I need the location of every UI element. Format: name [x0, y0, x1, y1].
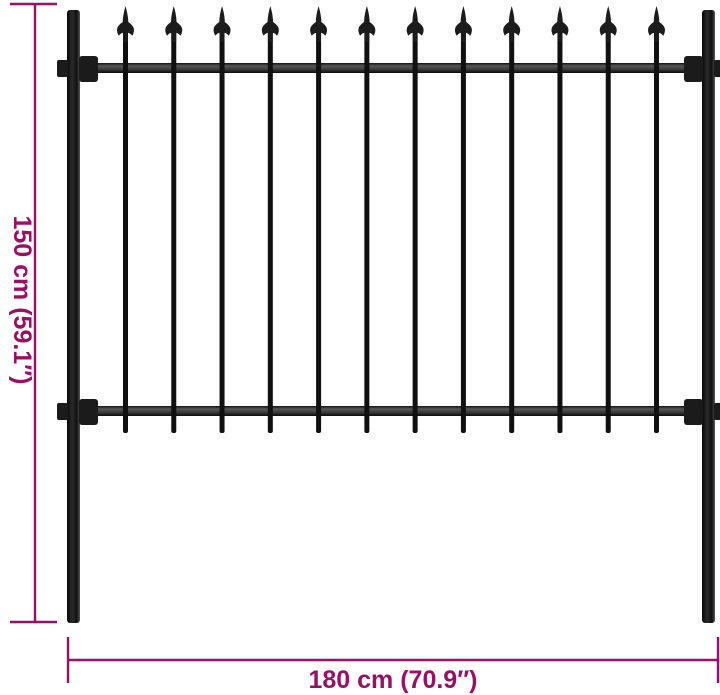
fence-diagram-canvas: 150 cm (59.1″) 180 cm (70.9″) — [0, 0, 720, 695]
fence-right-post — [702, 10, 715, 623]
picket-bar — [654, 30, 659, 433]
picket-bar — [509, 30, 514, 433]
bracket-nub-bottom-left — [57, 403, 68, 420]
bracket-nub-top-left — [57, 60, 68, 77]
fence-left-post — [67, 10, 80, 623]
picket-bar — [557, 30, 562, 433]
bracket-top-right — [684, 56, 703, 82]
picket-bar — [413, 30, 418, 433]
bracket-top-left — [79, 56, 98, 82]
picket-bar — [220, 30, 225, 433]
picket-bar — [316, 30, 321, 433]
picket-bar — [461, 30, 466, 433]
picket-bar — [171, 30, 176, 433]
bracket-bottom-left — [79, 399, 98, 425]
picket-bar — [123, 30, 128, 433]
picket-bar — [364, 30, 369, 433]
background — [0, 0, 720, 695]
bracket-bottom-right — [684, 399, 703, 425]
product-diagram: 150 cm (59.1″) 180 cm (70.9″) — [0, 0, 720, 695]
picket-bar — [268, 30, 273, 433]
picket-bar — [606, 30, 611, 433]
height-dimension-label: 150 cm (59.1″) — [8, 215, 36, 384]
width-dimension-label: 180 cm (70.9″) — [308, 666, 477, 694]
bracket-nub-top-right — [714, 60, 720, 77]
bracket-nub-bottom-right — [714, 403, 720, 420]
